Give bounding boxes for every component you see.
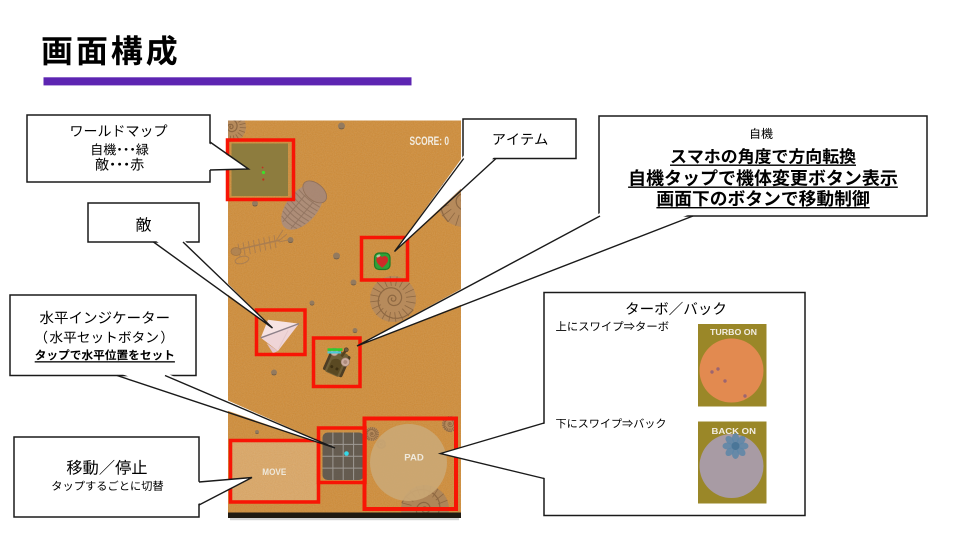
svg-text:PAD: PAD <box>404 453 424 464</box>
svg-text:TURBO ON: TURBO ON <box>710 328 757 337</box>
svg-text:SCORE: 0: SCORE: 0 <box>410 136 450 148</box>
svg-text:BACK ON: BACK ON <box>712 427 757 436</box>
svg-text:MOVE: MOVE <box>262 467 286 478</box>
